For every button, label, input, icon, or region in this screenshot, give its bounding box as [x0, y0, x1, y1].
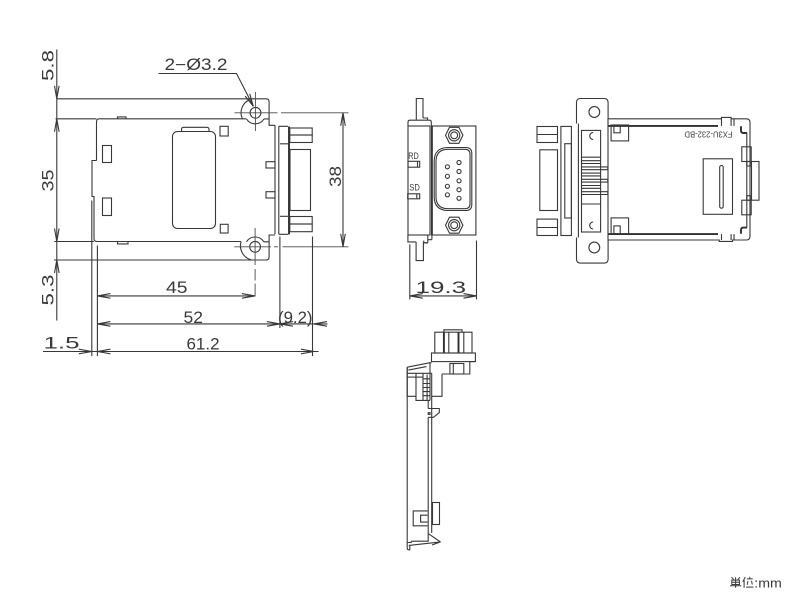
svg-text:1.5: 1.5: [44, 335, 80, 353]
svg-text:(9.2): (9.2): [278, 309, 313, 327]
svg-text:RD: RD: [408, 151, 419, 161]
svg-text:35: 35: [40, 170, 58, 192]
svg-text:2−Ø3.2: 2−Ø3.2: [165, 56, 228, 74]
svg-text:SD: SD: [409, 183, 420, 193]
svg-text:52: 52: [184, 309, 204, 327]
svg-text:38: 38: [327, 166, 345, 187]
svg-text:45: 45: [166, 279, 188, 297]
svg-text:5.8: 5.8: [40, 50, 58, 81]
svg-text:61.2: 61.2: [187, 336, 220, 354]
svg-text::mm: :mm: [754, 575, 782, 590]
svg-text:19.3: 19.3: [416, 279, 467, 297]
svg-text:5.3: 5.3: [40, 275, 58, 306]
svg-text:FX3U-232-BD: FX3U-232-BD: [685, 129, 733, 139]
